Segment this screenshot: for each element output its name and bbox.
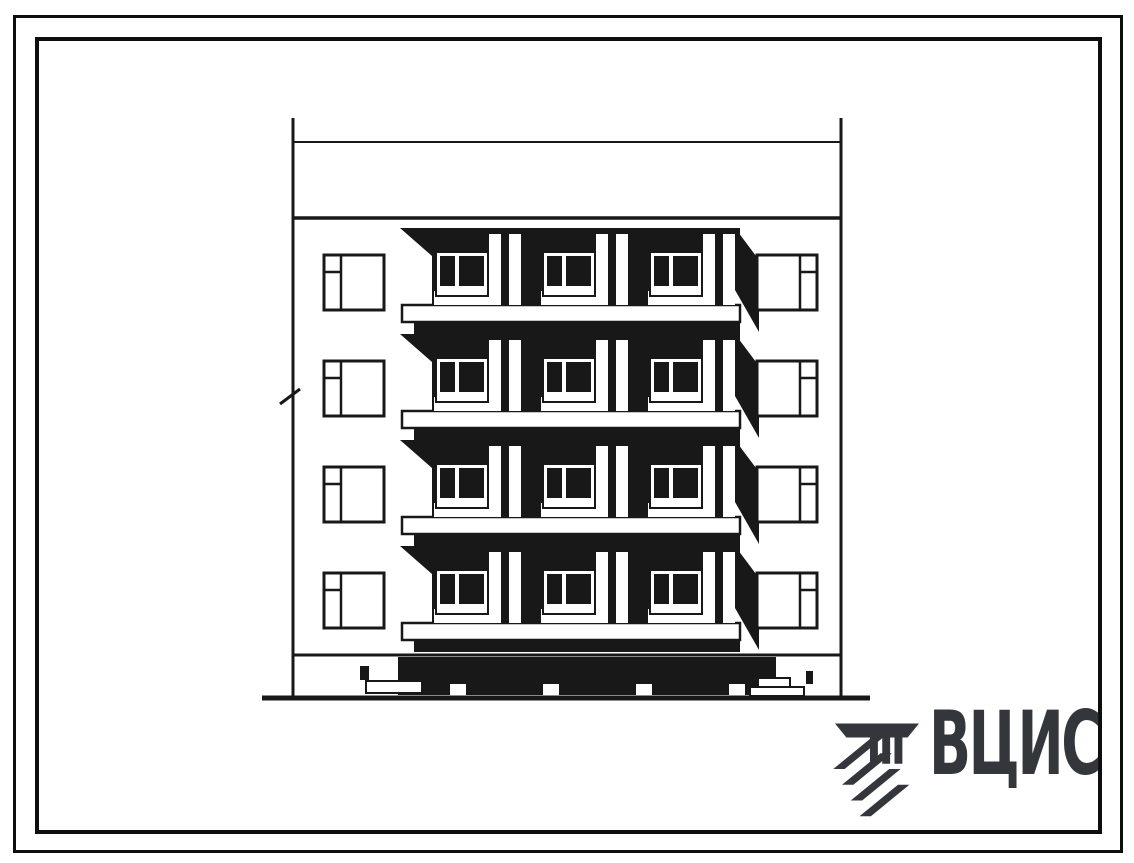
side-window-right — [757, 255, 817, 310]
window-pane — [654, 256, 669, 286]
balcony-slab — [402, 623, 740, 640]
balcony-slab — [402, 517, 740, 534]
floor-3 — [324, 440, 817, 546]
pier — [723, 446, 735, 517]
window-pane — [654, 468, 669, 498]
window-pane — [673, 362, 698, 392]
balcony-slab — [402, 411, 740, 428]
window-pane — [654, 574, 669, 604]
side-window-right — [757, 467, 817, 522]
window-pane — [547, 574, 562, 604]
base-notch — [450, 684, 466, 695]
window-pane — [654, 362, 669, 392]
slab-shadow — [414, 640, 740, 652]
window-pane — [459, 256, 484, 286]
window-pane — [440, 256, 455, 286]
level-tick — [280, 389, 300, 404]
window-pane — [566, 468, 591, 498]
side-window-left — [324, 255, 384, 310]
pier — [723, 552, 735, 623]
window-pane — [673, 468, 698, 498]
slab-shadow — [414, 428, 740, 440]
entrance-step — [366, 681, 422, 693]
window-pane — [547, 362, 562, 392]
pier — [616, 234, 628, 305]
window-pane — [459, 362, 484, 392]
logo-emblem-icon — [833, 720, 921, 818]
logo-text: ВЦИС — [929, 700, 1099, 788]
base-notch — [729, 684, 745, 695]
window-pane — [566, 362, 591, 392]
side-window-right — [757, 361, 817, 416]
side-window-right — [757, 573, 817, 628]
window-pane — [673, 574, 698, 604]
window-pane — [459, 468, 484, 498]
entrance-step — [758, 678, 790, 687]
window-pane — [459, 574, 484, 604]
plinth — [262, 657, 870, 698]
window-pane — [547, 256, 562, 286]
slab-shadow — [414, 534, 740, 546]
window-pane — [566, 256, 591, 286]
vent — [360, 666, 369, 680]
vent — [806, 671, 813, 684]
window-pane — [547, 468, 562, 498]
publisher-logo: ВЦИС — [833, 712, 1097, 816]
floor-2 — [324, 334, 817, 440]
scanned-drawing-page: ВЦИС — [0, 0, 1134, 863]
pier — [616, 552, 628, 623]
window-pane — [673, 256, 698, 286]
entrance-step — [750, 687, 804, 696]
pier — [509, 234, 521, 305]
window-pane — [440, 574, 455, 604]
pier — [509, 552, 521, 623]
pier — [723, 340, 735, 411]
slab-shadow — [414, 322, 740, 334]
pier — [509, 446, 521, 517]
base-notch — [636, 684, 652, 695]
pier — [616, 340, 628, 411]
base-notch — [543, 684, 559, 695]
window-pane — [440, 362, 455, 392]
floor-1 — [324, 228, 817, 334]
side-window-left — [324, 573, 384, 628]
window-pane — [566, 574, 591, 604]
emblem-beam — [835, 724, 919, 738]
pier — [616, 446, 628, 517]
floor-4 — [324, 546, 817, 652]
window-pane — [440, 468, 455, 498]
balcony-slab — [402, 305, 740, 322]
side-window-left — [324, 361, 384, 416]
pier — [723, 234, 735, 305]
emblem-tooth — [895, 738, 903, 764]
side-window-left — [324, 467, 384, 522]
pier — [509, 340, 521, 411]
